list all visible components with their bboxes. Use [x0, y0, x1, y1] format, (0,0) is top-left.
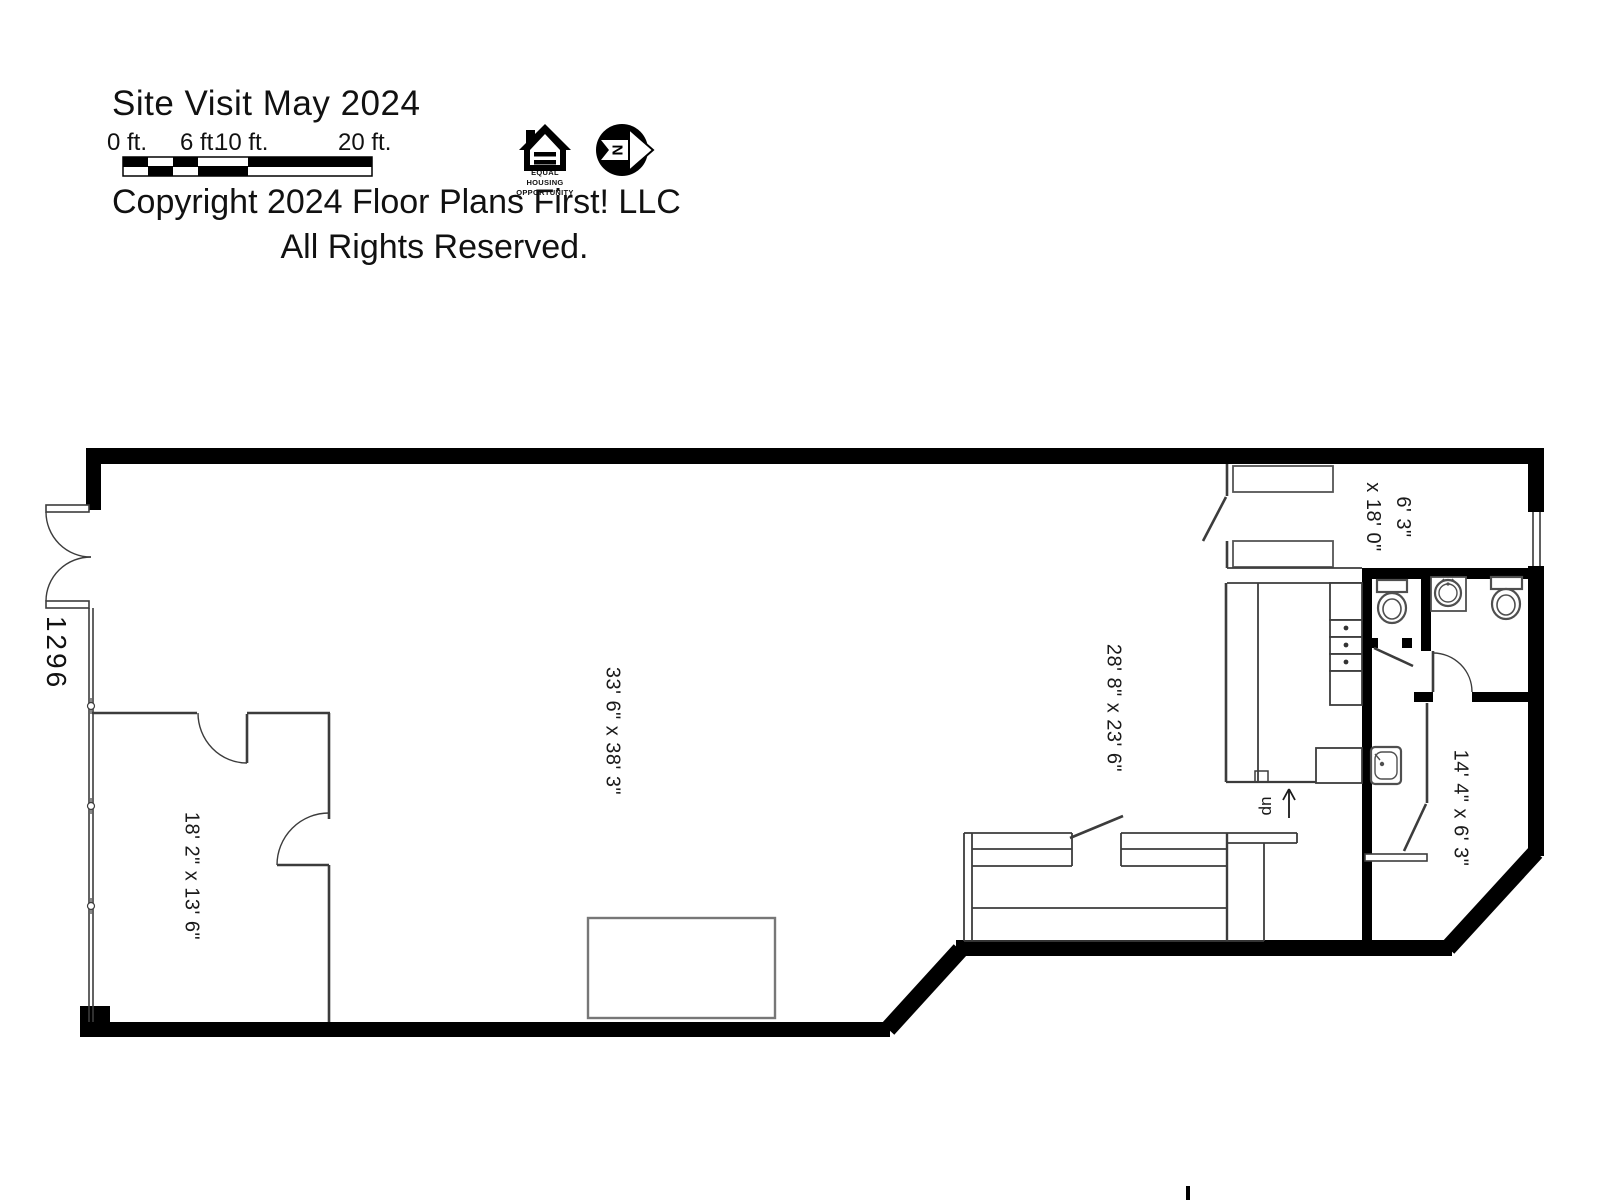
toilet-icon	[1377, 580, 1407, 623]
room-label-storage-room: 6' 3" x 18' 0"	[1358, 482, 1418, 551]
kitchen-sink-icon	[1371, 747, 1401, 784]
scale-bar-icon	[123, 157, 372, 176]
stairs-up-label: up	[1257, 797, 1277, 816]
shelf	[1233, 541, 1333, 567]
page-edge-mark	[1186, 1186, 1190, 1200]
right-window	[1533, 512, 1540, 566]
entry-double-door	[46, 505, 91, 608]
hallway-door	[1404, 804, 1426, 851]
kitchen-cabinets	[1316, 583, 1362, 783]
room-label-main-area: 33' 6" x 38' 3"	[601, 667, 624, 795]
bathroom-sink-icon	[1431, 577, 1466, 611]
bathroom-a-door	[1374, 648, 1413, 666]
front-room-walls	[92, 713, 330, 1022]
up-arrow-icon	[1283, 789, 1295, 818]
storefront-window	[88, 608, 95, 1022]
stage-platform	[588, 918, 775, 1018]
bar-counter	[964, 816, 1297, 941]
floorplan-drawing: N	[0, 0, 1600, 1200]
bar-gate	[1070, 816, 1123, 838]
room-label-front-room: 18' 2" x 13' 6"	[180, 812, 203, 940]
bathroom-b-door	[1433, 651, 1472, 692]
shelf	[1233, 466, 1333, 492]
room-label-hallway: 14' 4" x 6' 3"	[1449, 750, 1472, 867]
toilet-icon	[1491, 577, 1522, 619]
north-letter: N	[609, 145, 626, 156]
address-label: 1296	[40, 616, 72, 690]
room-label-rear-area: 28' 8" x 23' 6"	[1102, 644, 1125, 772]
equal-housing-icon	[519, 124, 571, 171]
storage-room-walls	[1203, 464, 1362, 583]
floor-plan-page: Site Visit May 2024 0 ft. 6 ft. 10 ft. 2…	[0, 0, 1600, 1200]
north-arrow-icon: N	[596, 124, 653, 176]
